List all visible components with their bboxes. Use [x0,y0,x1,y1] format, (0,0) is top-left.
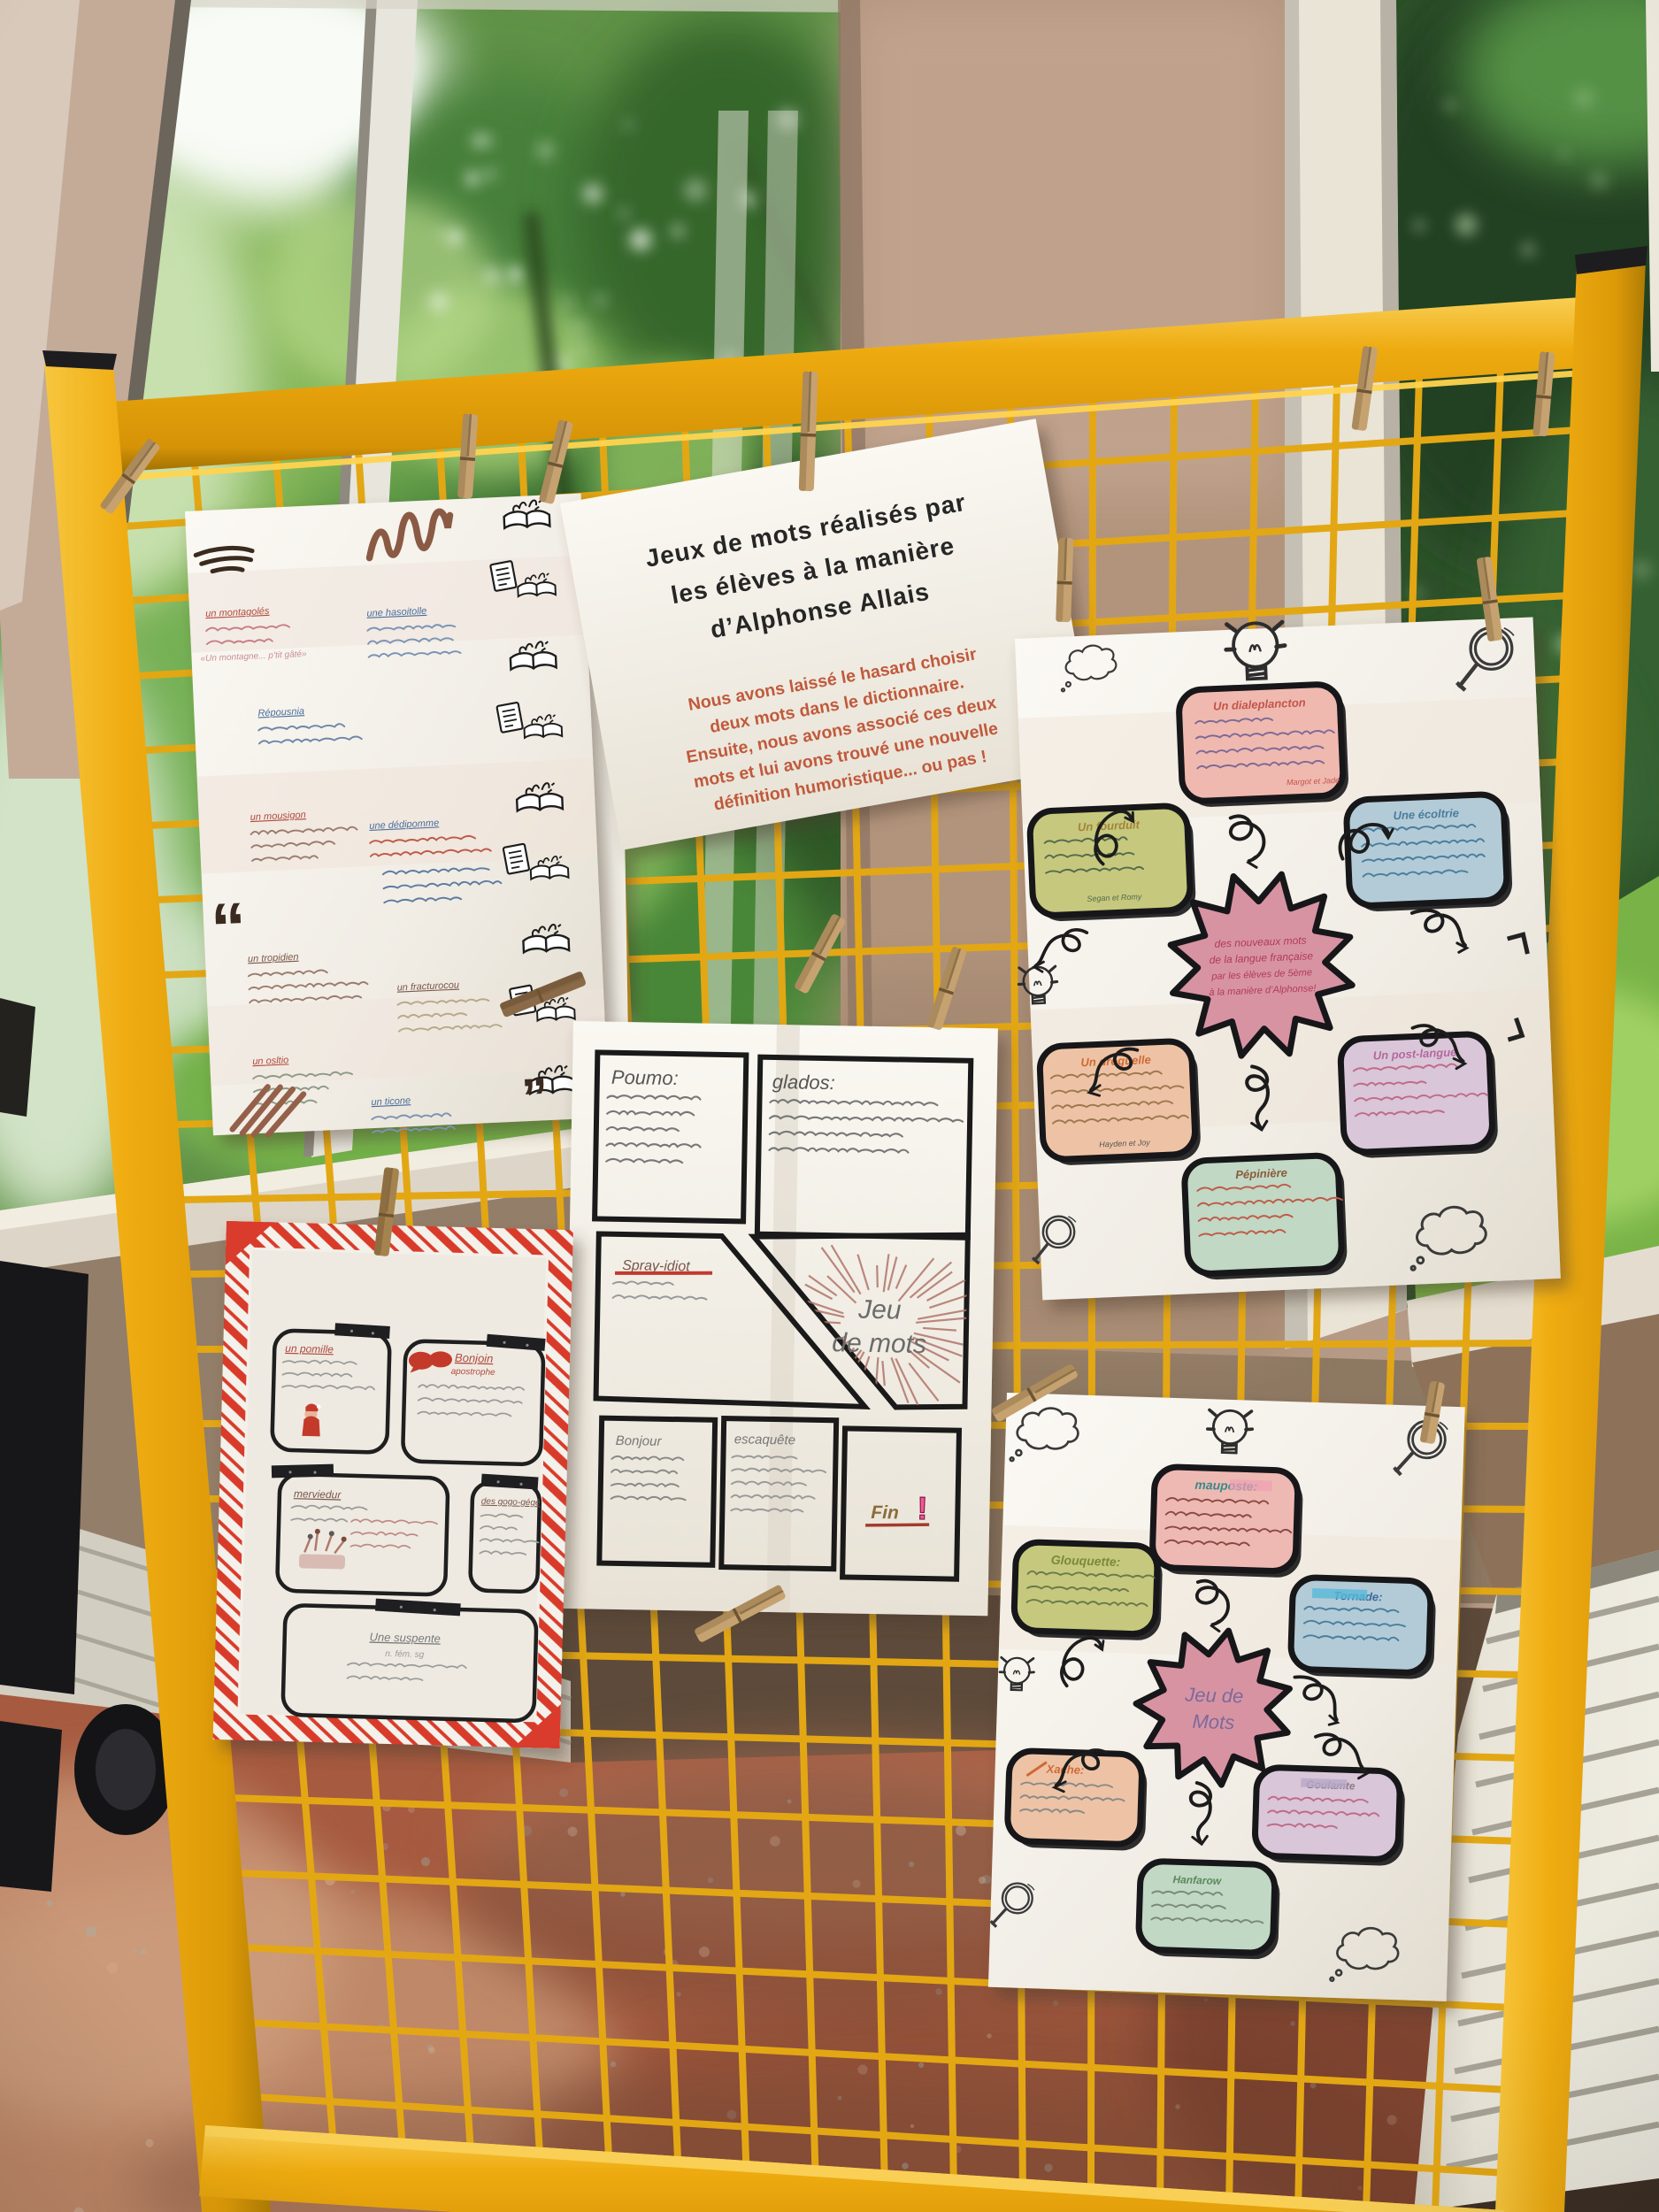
svg-text:Jeu: Jeu [857,1295,902,1325]
svg-text:Bonjoin: Bonjoin [455,1351,494,1365]
svg-text:des gogo-gégé: des gogo-gégé [481,1497,541,1509]
svg-text:Répousnia: Répousnia [257,706,304,718]
svg-text:un osltio: un osltio [252,1055,288,1067]
svg-text:Mots: Mots [1192,1710,1234,1733]
svg-text:de mots: de mots [832,1328,926,1359]
svg-text:apostrophe: apostrophe [450,1367,495,1378]
svg-text:n. fém. sg: n. fém. sg [385,1649,425,1660]
svg-text:Fin: Fin [871,1502,899,1524]
svg-text:Bonjour: Bonjour [616,1433,663,1449]
svg-text:merviedur: merviedur [294,1487,342,1501]
svg-text:glados:: glados: [772,1071,835,1094]
svg-text:Une suspente: Une suspente [369,1630,441,1645]
svg-text:escaquête: escaquête [734,1432,796,1448]
svg-text:“: “ [209,887,248,968]
svg-text:Poumo:: Poumo: [611,1066,679,1089]
svg-text:Une écoltrie: Une écoltrie [1393,806,1459,822]
svg-text:”: ” [520,1067,549,1127]
svg-text:un ticone: un ticone [371,1095,411,1108]
svg-text:Pépinière: Pépinière [1235,1166,1287,1181]
svg-text:Jeu de: Jeu de [1184,1683,1244,1707]
svg-text:Hanfarow: Hanfarow [1172,1873,1222,1887]
svg-text:!: ! [917,1490,928,1526]
svg-text:un pomille: un pomille [285,1342,334,1356]
svg-text:Glouquette:: Glouquette: [1051,1553,1121,1569]
